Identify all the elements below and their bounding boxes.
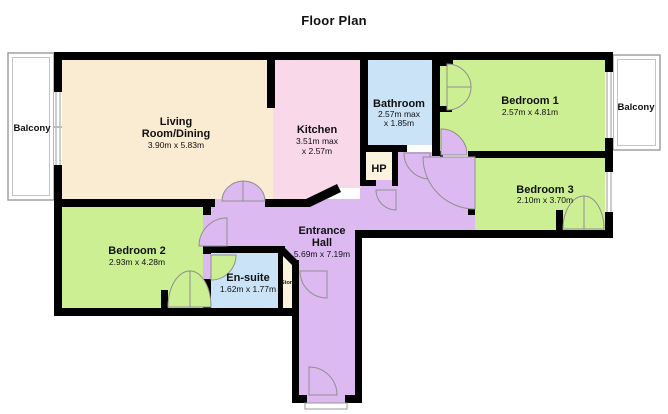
balcony-left-label: Balcony: [14, 123, 52, 134]
kitchen-dims-line1: 3.51m max: [296, 136, 339, 146]
floor-plan-canvas: Floor Plan Living Room/Dining 3.90m x 5.…: [0, 0, 668, 414]
kitchen-dims-line2: x 2.57m: [302, 146, 332, 156]
window-bedroom3: [605, 172, 613, 212]
entrance-hall-label-line1: Entrance: [298, 225, 345, 237]
ensuite-label: En-suite: [226, 272, 269, 284]
balcony-right-label: Balcony: [618, 102, 656, 113]
bedroom3-dims: 2.10m x 3.70m: [517, 195, 573, 205]
hp-label: HP: [371, 163, 386, 175]
window-bedroom1-balcony: [605, 72, 613, 138]
floor-plan-page: Floor Plan Living Room/Dining 3.90m x 5.…: [0, 0, 668, 414]
living-room-label-line1: Living: [160, 116, 192, 128]
entrance-hall-label-line2: Hall: [312, 237, 332, 249]
store-label: Store: [281, 280, 295, 286]
ensuite-dims: 1.62m x 1.77m: [220, 284, 276, 294]
entrance-hall-dims: 5.69m x 7.19m: [294, 249, 350, 259]
bedroom2-dims: 2.93m x 4.28m: [109, 257, 165, 267]
entrance-doorway: [305, 395, 347, 409]
bathroom-dims-line2: x 1.85m: [384, 118, 414, 128]
living-room-label-line2: Room/Dining: [142, 128, 210, 140]
bedroom1-label: Bedroom 1: [501, 95, 558, 107]
page-title: Floor Plan: [301, 13, 367, 28]
bedroom1-dims: 2.57m x 4.81m: [502, 107, 558, 117]
window-living-balcony: [54, 92, 62, 165]
kitchen-label: Kitchen: [297, 124, 338, 136]
living-room-dims: 3.90m x 5.83m: [148, 140, 204, 150]
bedroom2-label: Bedroom 2: [108, 245, 165, 257]
